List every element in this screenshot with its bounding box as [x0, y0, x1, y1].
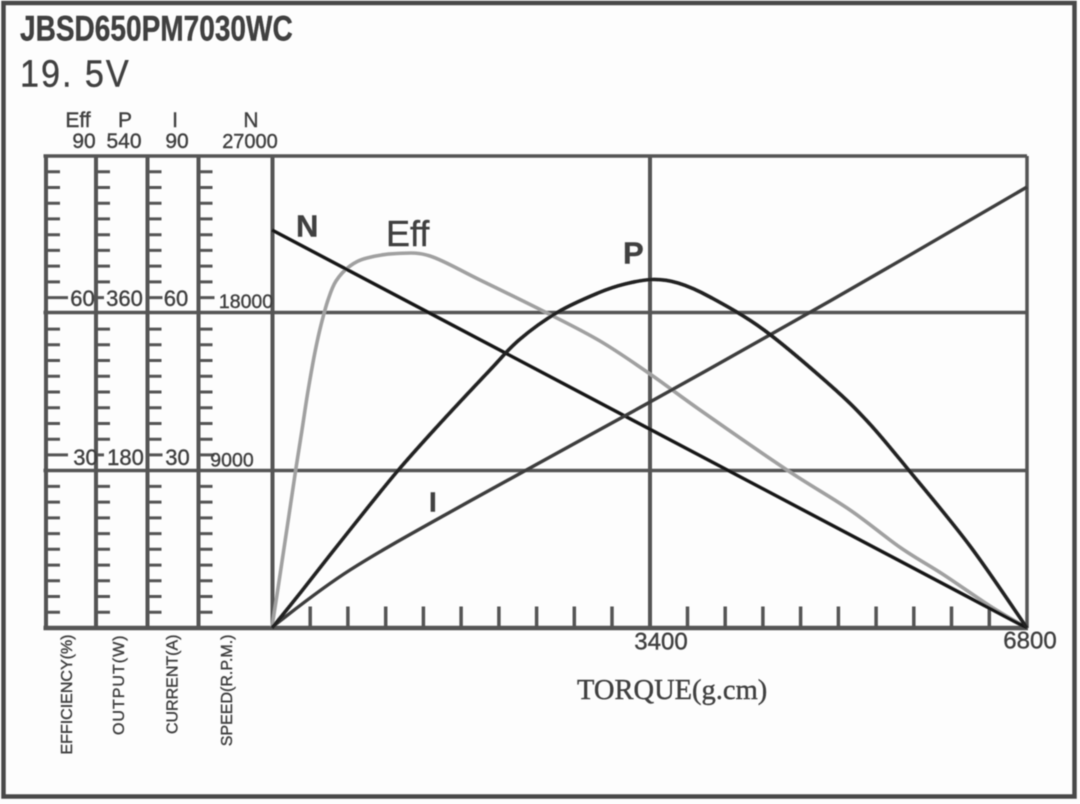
svg-text:60: 60	[70, 286, 94, 311]
svg-text:OUTPUT(W): OUTPUT(W)	[111, 635, 128, 736]
svg-text:CURRENT(A): CURRENT(A)	[165, 635, 182, 735]
svg-text:18000: 18000	[219, 291, 273, 313]
svg-text:I: I	[172, 109, 178, 132]
svg-text:90: 90	[165, 130, 188, 153]
svg-text:27000: 27000	[222, 131, 278, 153]
svg-text:Eff: Eff	[65, 109, 90, 132]
svg-text:6800: 6800	[1003, 628, 1056, 655]
svg-text:P: P	[623, 236, 644, 271]
svg-text:EFFICIENCY(%): EFFICIENCY(%)	[59, 635, 76, 755]
svg-text:N: N	[243, 109, 258, 132]
svg-text:TORQUE(g.cm): TORQUE(g.cm)	[577, 675, 767, 706]
svg-text:540: 540	[106, 130, 141, 153]
svg-text:JBSD650PM7030WC: JBSD650PM7030WC	[20, 8, 293, 48]
svg-text:Eff: Eff	[386, 213, 430, 254]
svg-text:30: 30	[165, 445, 189, 470]
svg-text:90: 90	[72, 130, 95, 153]
svg-text:180: 180	[107, 445, 144, 470]
svg-text:3400: 3400	[634, 629, 687, 656]
svg-text:I: I	[429, 487, 437, 518]
svg-text:N: N	[296, 209, 318, 244]
svg-text:19. 5V: 19. 5V	[20, 52, 131, 95]
svg-text:60: 60	[164, 286, 188, 311]
svg-text:9000: 9000	[210, 450, 254, 472]
svg-text:360: 360	[106, 286, 143, 311]
svg-text:SPEED(R.P.M.): SPEED(R.P.M.)	[219, 635, 236, 747]
svg-text:30: 30	[73, 445, 97, 470]
svg-text:P: P	[118, 109, 132, 132]
